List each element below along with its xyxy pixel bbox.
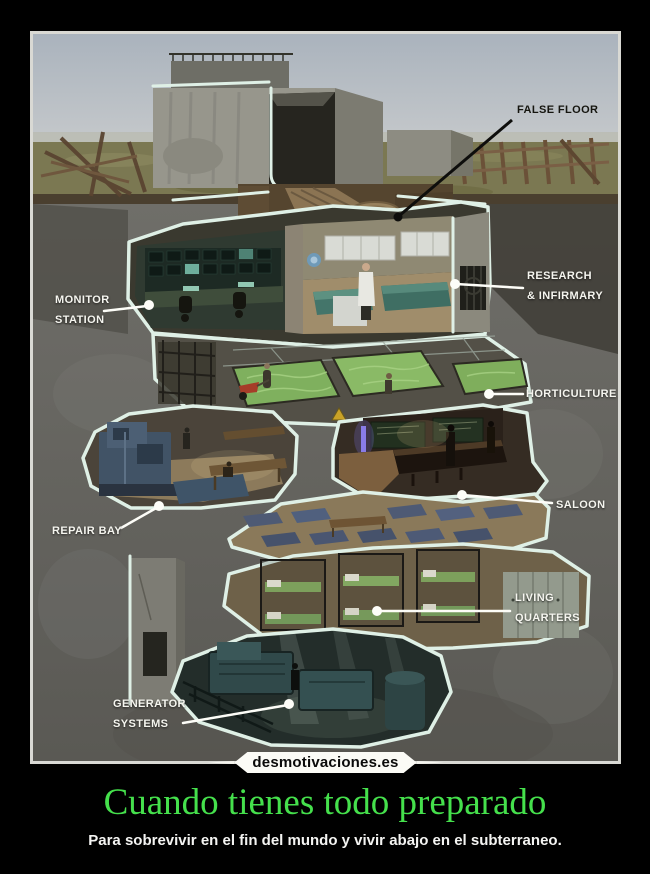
label-text: RESEARCH	[527, 266, 603, 286]
label-text: LIVING	[515, 588, 580, 608]
label-text: FALSE FLOOR	[517, 100, 598, 120]
label-living-quarters: LIVING QUARTERS	[515, 588, 580, 628]
monitor-station-room	[135, 230, 285, 330]
level-repair-bay	[83, 406, 297, 508]
label-monitor-station: MONITOR STATION	[55, 290, 110, 330]
label-text: GENERATOR	[113, 694, 186, 714]
repair-machine	[99, 422, 183, 496]
label-text: SALOON	[556, 495, 605, 515]
ribbon-left-line	[207, 761, 234, 764]
research-lab-room	[303, 216, 453, 334]
ribbon-right-line	[417, 761, 444, 764]
infirmary-cell	[453, 212, 490, 332]
label-generator-systems: GENERATOR SYSTEMS	[113, 694, 186, 734]
label-text: & INFIRMARY	[527, 286, 603, 306]
label-text: HORTICULTURE	[526, 384, 617, 404]
watermark-text: desmotivaciones.es	[234, 752, 416, 773]
level-monitor-research	[128, 202, 490, 347]
label-text: STATION	[55, 310, 110, 330]
label-research-infirmary: RESEARCH & INFIRMARY	[527, 266, 603, 306]
label-saloon: SALOON	[556, 495, 605, 515]
label-false-floor: FALSE FLOOR	[517, 100, 598, 120]
label-text: REPAIR BAY	[52, 521, 122, 541]
scaffolding	[158, 340, 216, 408]
bunk-beds	[261, 550, 479, 630]
label-repair-bay: REPAIR BAY	[52, 521, 122, 541]
label-text: SYSTEMS	[113, 714, 186, 734]
poster-subtitle: Para sobrevivir en el fin del mundo y vi…	[0, 831, 650, 851]
poster-image-frame: FALSE FLOOR MONITOR STATION RESEARCH & I…	[30, 31, 621, 764]
watermark-ribbon: desmotivaciones.es	[207, 752, 443, 773]
false-floor-callout-dot	[394, 213, 403, 222]
level-saloon	[333, 405, 547, 502]
label-text: QUARTERS	[515, 608, 580, 628]
label-text: MONITOR	[55, 290, 110, 310]
poster-title: Cuando tienes todo preparado	[0, 781, 650, 824]
label-horticulture: HORTICULTURE	[526, 384, 617, 404]
